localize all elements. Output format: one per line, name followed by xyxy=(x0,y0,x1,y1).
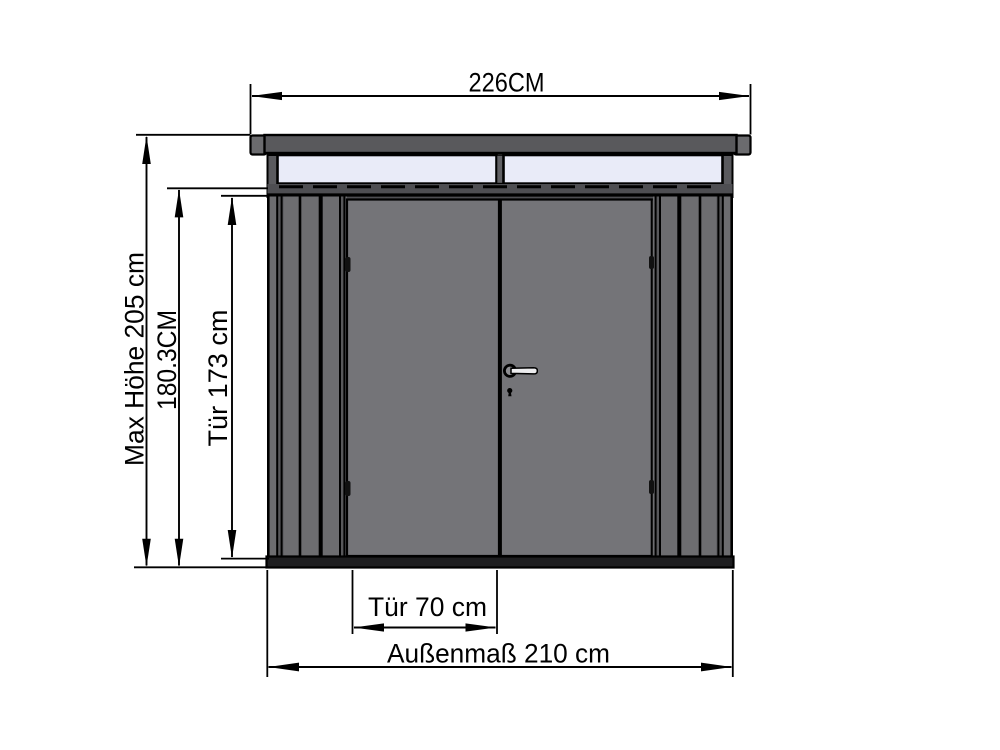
svg-text:226CM: 226CM xyxy=(469,68,545,98)
svg-text:180.3CM: 180.3CM xyxy=(152,310,182,410)
svg-text:Außenmaß 210 cm: Außenmaß 210 cm xyxy=(387,638,610,668)
svg-text:Tür 173 cm: Tür 173 cm xyxy=(203,310,233,447)
svg-text:Max Höhe 205 cm: Max Höhe 205 cm xyxy=(120,252,150,466)
svg-text:Tür 70 cm: Tür 70 cm xyxy=(368,592,487,622)
